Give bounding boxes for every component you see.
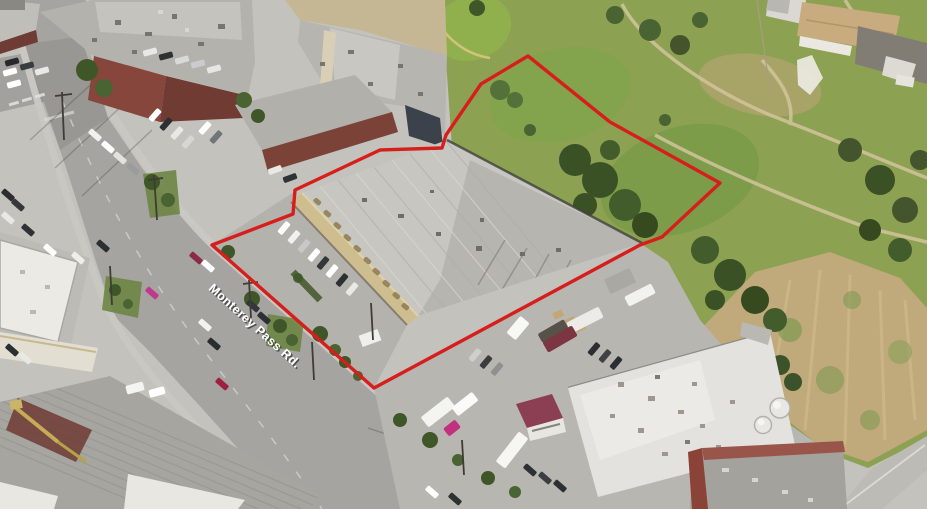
aerial-photo-canvas: Monterey Pass Rd. Monterey Pass Rd. [0, 0, 927, 509]
silo-tank [755, 417, 772, 434]
aerial-photo: Monterey Pass Rd. Monterey Pass Rd. [0, 0, 927, 509]
silo-tank [770, 398, 790, 418]
